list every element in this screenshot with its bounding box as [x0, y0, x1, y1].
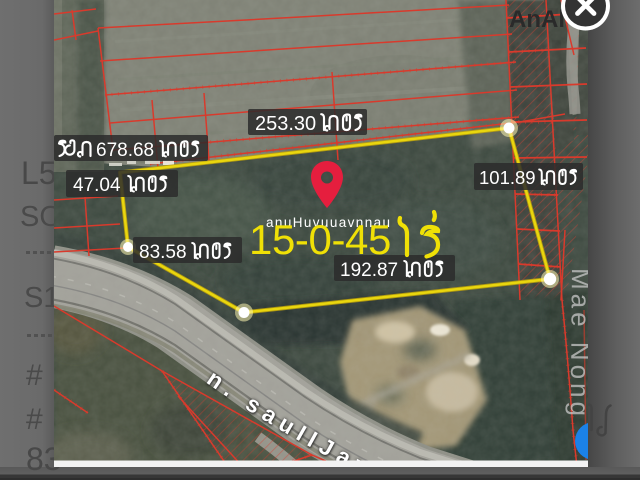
svg-text:15-0-45: 15-0-45	[249, 216, 391, 263]
svg-text:101.89: 101.89	[479, 167, 536, 188]
svg-text:#: #	[26, 403, 43, 436]
svg-text:678.68: 678.68	[96, 140, 154, 161]
svg-text:#: #	[26, 359, 43, 392]
svg-text:253.30: 253.30	[255, 113, 316, 135]
svg-text:83.58: 83.58	[139, 242, 187, 263]
svg-text:AnAl: AnAl	[509, 6, 565, 33]
svg-text:47.04: 47.04	[73, 175, 121, 196]
svg-text:192.87: 192.87	[340, 260, 398, 281]
